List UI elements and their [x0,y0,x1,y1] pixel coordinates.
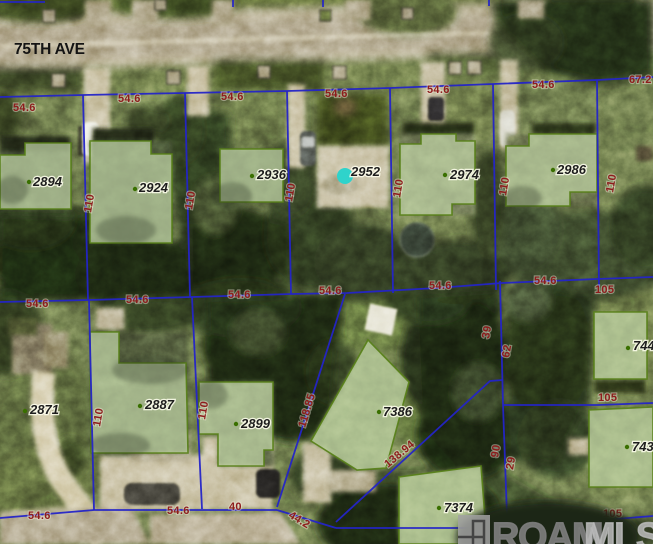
svg-text:39: 39 [480,325,494,340]
svg-text:54.6: 54.6 [532,79,555,91]
svg-text:54.6: 54.6 [325,88,348,100]
svg-text:744: 744 [633,338,653,353]
svg-text:MLS: MLS [584,516,653,544]
svg-text:54.6: 54.6 [28,510,51,522]
svg-text:2899: 2899 [240,416,271,431]
svg-text:90: 90 [489,444,503,459]
svg-text:2887: 2887 [144,397,175,412]
svg-text:54.6: 54.6 [221,91,244,103]
svg-text:2974: 2974 [449,167,480,182]
svg-text:54.6: 54.6 [429,280,452,292]
svg-text:2986: 2986 [556,162,587,177]
svg-text:75TH AVE: 75TH AVE [14,41,85,58]
svg-text:105: 105 [595,284,614,296]
svg-text:54.6: 54.6 [228,289,251,301]
svg-text:54.6: 54.6 [319,285,342,297]
svg-text:7386: 7386 [383,404,413,419]
svg-text:67.2: 67.2 [629,74,652,86]
svg-text:54.6: 54.6 [167,505,190,517]
svg-text:2924: 2924 [138,180,169,195]
svg-text:54.6: 54.6 [13,102,36,114]
svg-text:743: 743 [632,439,653,454]
svg-text:2871: 2871 [29,402,59,417]
svg-text:54.6: 54.6 [126,294,149,306]
svg-text:54.6: 54.6 [26,298,49,310]
svg-text:62: 62 [500,344,514,359]
svg-text:105: 105 [598,392,617,404]
svg-text:54.6: 54.6 [427,84,450,96]
svg-text:2952: 2952 [350,164,381,179]
svg-text:54.6: 54.6 [118,93,141,105]
svg-text:2894: 2894 [32,174,63,189]
svg-text:29: 29 [504,456,518,471]
svg-text:2936: 2936 [256,167,287,182]
svg-text:54.6: 54.6 [534,275,557,287]
svg-text:40: 40 [229,501,242,513]
svg-text:7374: 7374 [444,500,474,515]
